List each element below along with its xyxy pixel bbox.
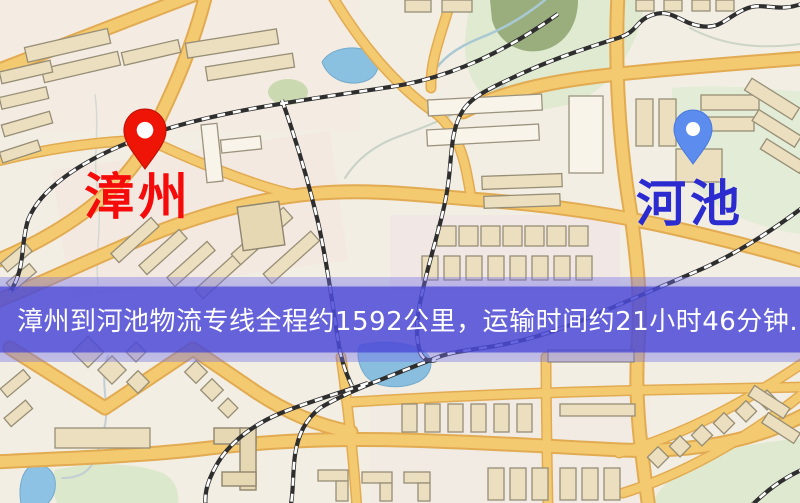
origin-label: 漳州	[84, 172, 192, 222]
route-info-banner: 漳州到河池物流专线全程约1592公里，运输时间约21小时46分钟.	[0, 277, 800, 362]
map-background	[0, 0, 800, 503]
pin-hole	[686, 122, 700, 136]
destination-label: 河池	[636, 179, 744, 229]
route-info-text: 漳州到河池物流专线全程约1592公里，运输时间约21小时46分钟.	[0, 301, 798, 338]
origin-pin location-pin-icon[interactable]	[122, 108, 168, 170]
map-view: 漳州 河池 漳州到河池物流专线全程约1592公里，运输时间约21小时46分钟.	[0, 0, 800, 503]
pin-hole	[137, 122, 154, 139]
destination-pin location-pin-icon[interactable]	[672, 109, 714, 165]
